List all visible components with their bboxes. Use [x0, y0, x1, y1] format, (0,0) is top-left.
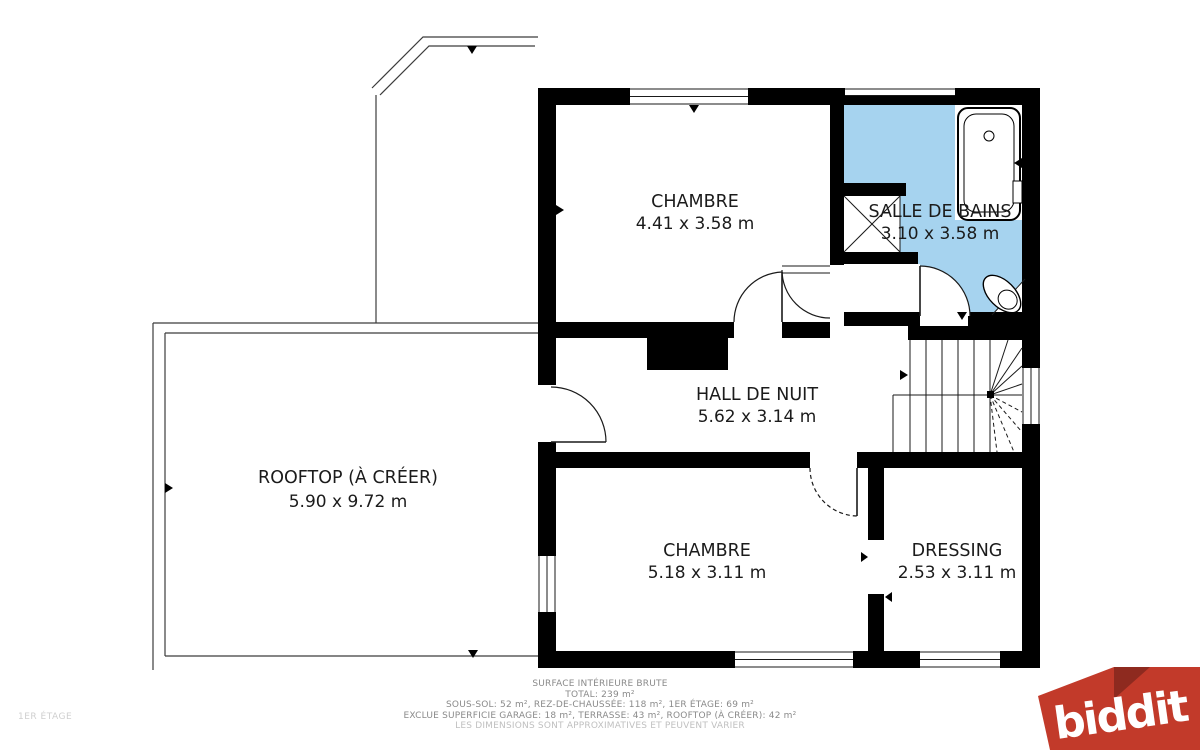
surface-excluded: EXCLUE SUPERFICIE GARAGE: 18 m², TERRASS…: [0, 711, 1200, 722]
surface-by-floor: SOUS-SOL: 52 m², REZ-DE-CHAUSSÉE: 118 m²…: [0, 700, 1200, 711]
svg-text:2.53 x 3.11 m: 2.53 x 3.11 m: [898, 563, 1017, 583]
svg-text:SALLE DE BAINS: SALLE DE BAINS: [869, 202, 1012, 222]
svg-text:DRESSING: DRESSING: [912, 541, 1003, 561]
floor-label: 1ER ÉTAGE: [18, 712, 72, 722]
surface-total: TOTAL: 239 m²: [0, 690, 1200, 701]
svg-text:CHAMBRE: CHAMBRE: [651, 192, 739, 212]
svg-text:5.90 x 9.72 m: 5.90 x 9.72 m: [289, 492, 408, 512]
svg-text:5.62 x 3.14 m: 5.62 x 3.14 m: [698, 407, 817, 427]
room-label-chambre-bottom: CHAMBRE 5.18 x 3.11 m: [648, 541, 767, 583]
room-label-chambre-top: CHAMBRE 4.41 x 3.58 m: [636, 192, 755, 234]
chimney-block: [647, 322, 728, 370]
svg-text:3.10 x 3.58 m: 3.10 x 3.58 m: [881, 224, 1000, 244]
staircase: [893, 340, 1022, 452]
svg-text:4.41 x 3.58 m: 4.41 x 3.58 m: [636, 214, 755, 234]
floor-plan-drawing: CHAMBRE 4.41 x 3.58 m SALLE DE BAINS 3.1…: [0, 0, 1200, 750]
rooftop-outline: [153, 37, 538, 670]
room-label-hall-de-nuit: HALL DE NUIT 5.62 x 3.14 m: [696, 385, 818, 427]
room-label-dressing: DRESSING 2.53 x 3.11 m: [898, 541, 1017, 583]
svg-text:ROOFTOP (À CRÉER): ROOFTOP (À CRÉER): [258, 466, 438, 488]
surface-title: SURFACE INTÉRIEURE BRUTE: [0, 679, 1200, 690]
radiator-fixture: [1013, 181, 1022, 203]
svg-text:HALL DE NUIT: HALL DE NUIT: [696, 385, 818, 405]
surface-disclaimer: LES DIMENSIONS SONT APPROXIMATIVES ET PE…: [0, 721, 1200, 732]
room-label-rooftop: ROOFTOP (À CRÉER) 5.90 x 9.72 m: [258, 466, 438, 512]
surface-summary: SURFACE INTÉRIEURE BRUTE TOTAL: 239 m² S…: [0, 679, 1200, 732]
svg-text:CHAMBRE: CHAMBRE: [663, 541, 751, 561]
floor-plan-page: CHAMBRE 4.41 x 3.58 m SALLE DE BAINS 3.1…: [0, 0, 1200, 750]
svg-text:5.18 x 3.11 m: 5.18 x 3.11 m: [648, 563, 767, 583]
